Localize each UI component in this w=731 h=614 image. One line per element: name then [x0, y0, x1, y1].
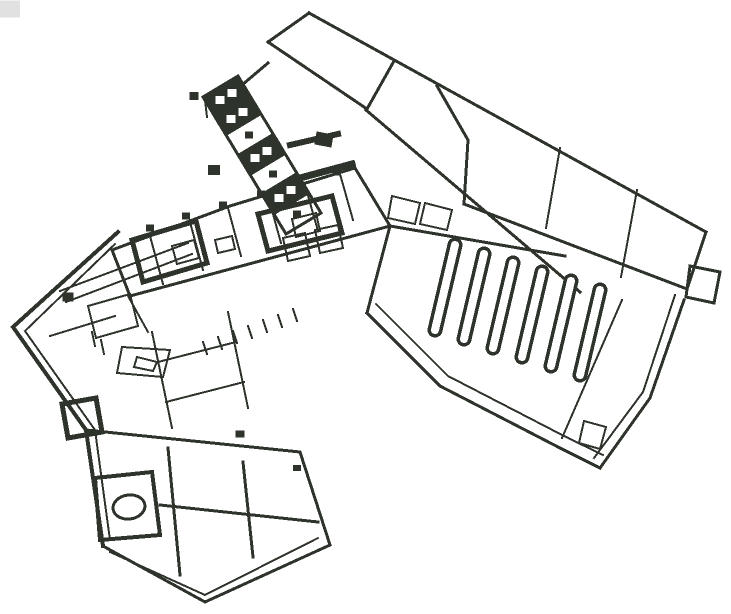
grid-outline — [86, 430, 330, 602]
ladder-side-blob — [190, 92, 199, 100]
grid-bottom-inner-wall — [110, 538, 318, 595]
ladder-side-blob-2 — [208, 165, 220, 175]
wing-left-end-wall — [268, 13, 309, 42]
cluster-bottom-wall — [130, 226, 390, 296]
block-small-room — [117, 347, 170, 377]
hand-drawn-floor-plan-sketch — [0, 0, 731, 614]
wing-right-end-wall — [687, 232, 706, 289]
block-col-wall-1 — [152, 332, 172, 428]
cluster-blob-6 — [333, 169, 341, 176]
ladder-hole-2 — [228, 89, 237, 97]
wing-top-wall — [309, 13, 706, 232]
block-cross-wall — [50, 316, 115, 336]
door-tick-1 — [203, 342, 207, 354]
hatch-room-right-outer-wall — [600, 300, 684, 468]
cluster-blob-2 — [182, 213, 190, 220]
wing-seg1-bottom-wall — [268, 42, 367, 109]
ladder-hole-4 — [239, 108, 248, 116]
cluster-left-wall — [112, 250, 130, 296]
hatch-room-left-wall — [367, 226, 390, 313]
hatch-room-small-room — [579, 421, 606, 449]
ladder-hole-3 — [227, 115, 236, 123]
sketch-canvas — [0, 0, 731, 614]
door-tick-7 — [293, 309, 297, 321]
ladder-hole-8 — [287, 186, 296, 194]
grid-blob-1 — [236, 431, 245, 438]
hanging-room-3 — [388, 196, 420, 224]
door-tick-6 — [278, 315, 282, 327]
oval-fixture — [111, 493, 146, 521]
cluster-partition-6 — [340, 174, 353, 220]
ladder-hole-5 — [251, 154, 260, 162]
wing-seg2-left-wall — [437, 86, 468, 204]
block-col-wall-2 — [228, 312, 248, 408]
hanging-room-4 — [420, 203, 452, 230]
wing-ladder-connector — [242, 63, 268, 85]
ladder-mark-3 — [293, 211, 301, 218]
wing-tip-room — [686, 266, 720, 303]
wing-diagonal-wall — [366, 110, 580, 292]
cluster-blob-1 — [146, 225, 154, 232]
wing-seg1-right-wall — [367, 61, 394, 109]
cluster-right-wall — [355, 168, 390, 226]
grid-row-wall — [160, 505, 318, 522]
grid-col-wall-2 — [243, 462, 253, 557]
corner-smudge — [0, 1, 20, 18]
door-tick-5 — [263, 320, 267, 332]
cluster-cell-rect — [215, 236, 235, 253]
ladder-hole-6 — [263, 147, 272, 155]
wing-partition-1 — [621, 190, 637, 277]
ladder-bottom-blob — [315, 132, 333, 147]
wing-partition-2 — [546, 148, 560, 228]
ladder-hole-1 — [216, 96, 225, 104]
cluster-blob-3 — [219, 202, 227, 209]
ladder-hole-7 — [275, 194, 284, 202]
hatch-room-bottom-inner-wall — [376, 304, 603, 455]
hatch-room-right-inner-wall — [594, 295, 675, 458]
ladder-mark-2 — [269, 171, 277, 178]
block-row-wall-2 — [166, 382, 244, 402]
ladder-mark-1 — [245, 132, 253, 139]
block-small-room-inner — [134, 357, 157, 371]
block-outer-top-wall — [13, 232, 118, 327]
grid-col-wall-1 — [168, 448, 180, 575]
wall-tick-2 — [101, 340, 104, 354]
grid-blob-2 — [293, 465, 301, 471]
door-tick-4 — [248, 326, 252, 338]
